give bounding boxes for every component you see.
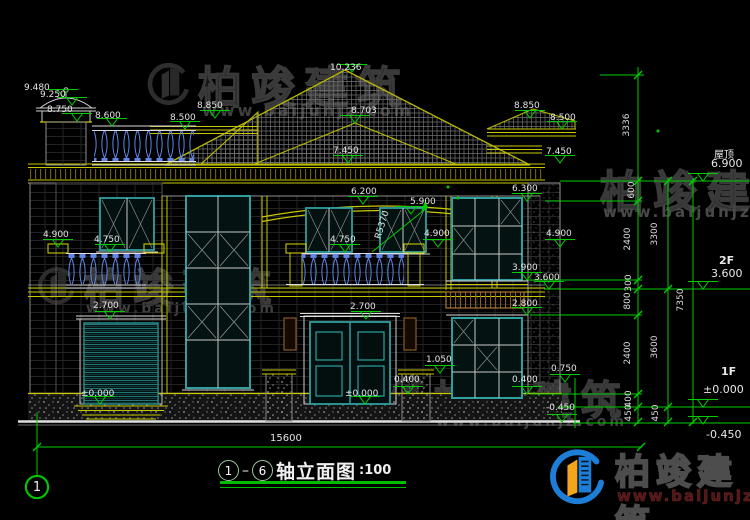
dimension-label: 2400 xyxy=(623,217,633,261)
elevation-label: 8.750 xyxy=(47,105,73,115)
dimension-label: 600 xyxy=(627,168,637,212)
right-wing xyxy=(446,198,528,398)
elevation-label: 4.900 xyxy=(424,229,450,239)
elevation-label: 4.900 xyxy=(546,229,572,239)
title-underline-thin xyxy=(220,487,406,488)
elevation-label: 6.300 xyxy=(512,184,538,194)
dimension-label: 3336 xyxy=(622,103,632,147)
elevation-label: 3.600 xyxy=(534,273,560,283)
elevation-label: -0.450 xyxy=(546,403,575,413)
floor-label-1f: 1F xyxy=(721,365,736,378)
elevation-label: 2.700 xyxy=(93,301,119,311)
title-axis-end: 6 xyxy=(252,460,273,481)
elevation-label: 8.500 xyxy=(550,113,576,123)
logo-brand-text: 柏竣建筑 xyxy=(615,444,750,520)
axis-bubble-1: 1 xyxy=(26,476,48,498)
title-axis-start: 1 xyxy=(218,460,239,481)
title-scale: :100 xyxy=(359,463,391,478)
floor-value-2f: 3.600 xyxy=(711,267,743,280)
elevation-label: 8.850 xyxy=(197,101,223,111)
dimension-label: 3600 xyxy=(650,325,660,369)
elevation-label: 8.850 xyxy=(514,101,540,111)
elevation-label: 8.600 xyxy=(95,111,121,121)
elevation-label: 8.703 xyxy=(351,106,377,116)
elevation-label: 10.236 xyxy=(330,63,362,73)
logo-url-text: www.baijunjz.com xyxy=(617,487,750,505)
floor-label-2f: 2F xyxy=(719,254,734,267)
elevation-label: 7.450 xyxy=(546,147,572,157)
title-name: 轴立面图 xyxy=(276,457,356,484)
drawing-title: 1 – 6 轴立面图 :100 xyxy=(218,457,391,484)
title-dash: – xyxy=(242,463,249,479)
elevation-label: 8.500 xyxy=(170,113,196,123)
dimension-label: 3300 xyxy=(650,212,660,256)
elevation-drawing xyxy=(0,0,750,520)
elevation-label: 0.400 xyxy=(512,375,538,385)
overall-width-dimension: 15600 xyxy=(270,433,302,444)
floor-value-1f: ±0.000 xyxy=(703,383,744,396)
dimension-label: 7350 xyxy=(676,278,686,322)
elevation-label: 2.700 xyxy=(350,302,376,312)
dimension-label: 2400 xyxy=(623,331,633,375)
elevation-label: 1.050 xyxy=(426,355,452,365)
floor-value-roof: 6.900 xyxy=(711,157,743,170)
elevation-label: 4.900 xyxy=(43,230,69,240)
dimension-label: 450 xyxy=(651,391,661,435)
elevation-label: 2.800 xyxy=(512,299,538,309)
elevation-label: ±0.000 xyxy=(81,389,114,399)
elevation-label: 6.200 xyxy=(351,187,377,197)
dimension-label: 450 xyxy=(624,391,634,435)
elevation-label: 0.400 xyxy=(394,375,420,385)
elevation-label: 0.750 xyxy=(551,364,577,374)
title-underline-thick xyxy=(220,481,406,484)
elevation-label: 7.450 xyxy=(333,146,359,156)
dimension-label: 800 xyxy=(623,279,633,323)
elevation-label: 4.750 xyxy=(94,235,120,245)
baijun-logo-icon xyxy=(545,443,611,509)
elevation-label: ±0.000 xyxy=(345,389,378,399)
cad-canvas: 柏竣建筑 www.baijunjz.com 柏竣建筑 www.baijunjz.… xyxy=(0,0,750,520)
elevation-label: 3.900 xyxy=(512,263,538,273)
elevation-label: 5.900 xyxy=(410,197,436,207)
floor-value-ground: -0.450 xyxy=(706,428,741,441)
elevation-label: 9.250 xyxy=(40,90,66,100)
elevation-label: 4.750 xyxy=(330,235,356,245)
